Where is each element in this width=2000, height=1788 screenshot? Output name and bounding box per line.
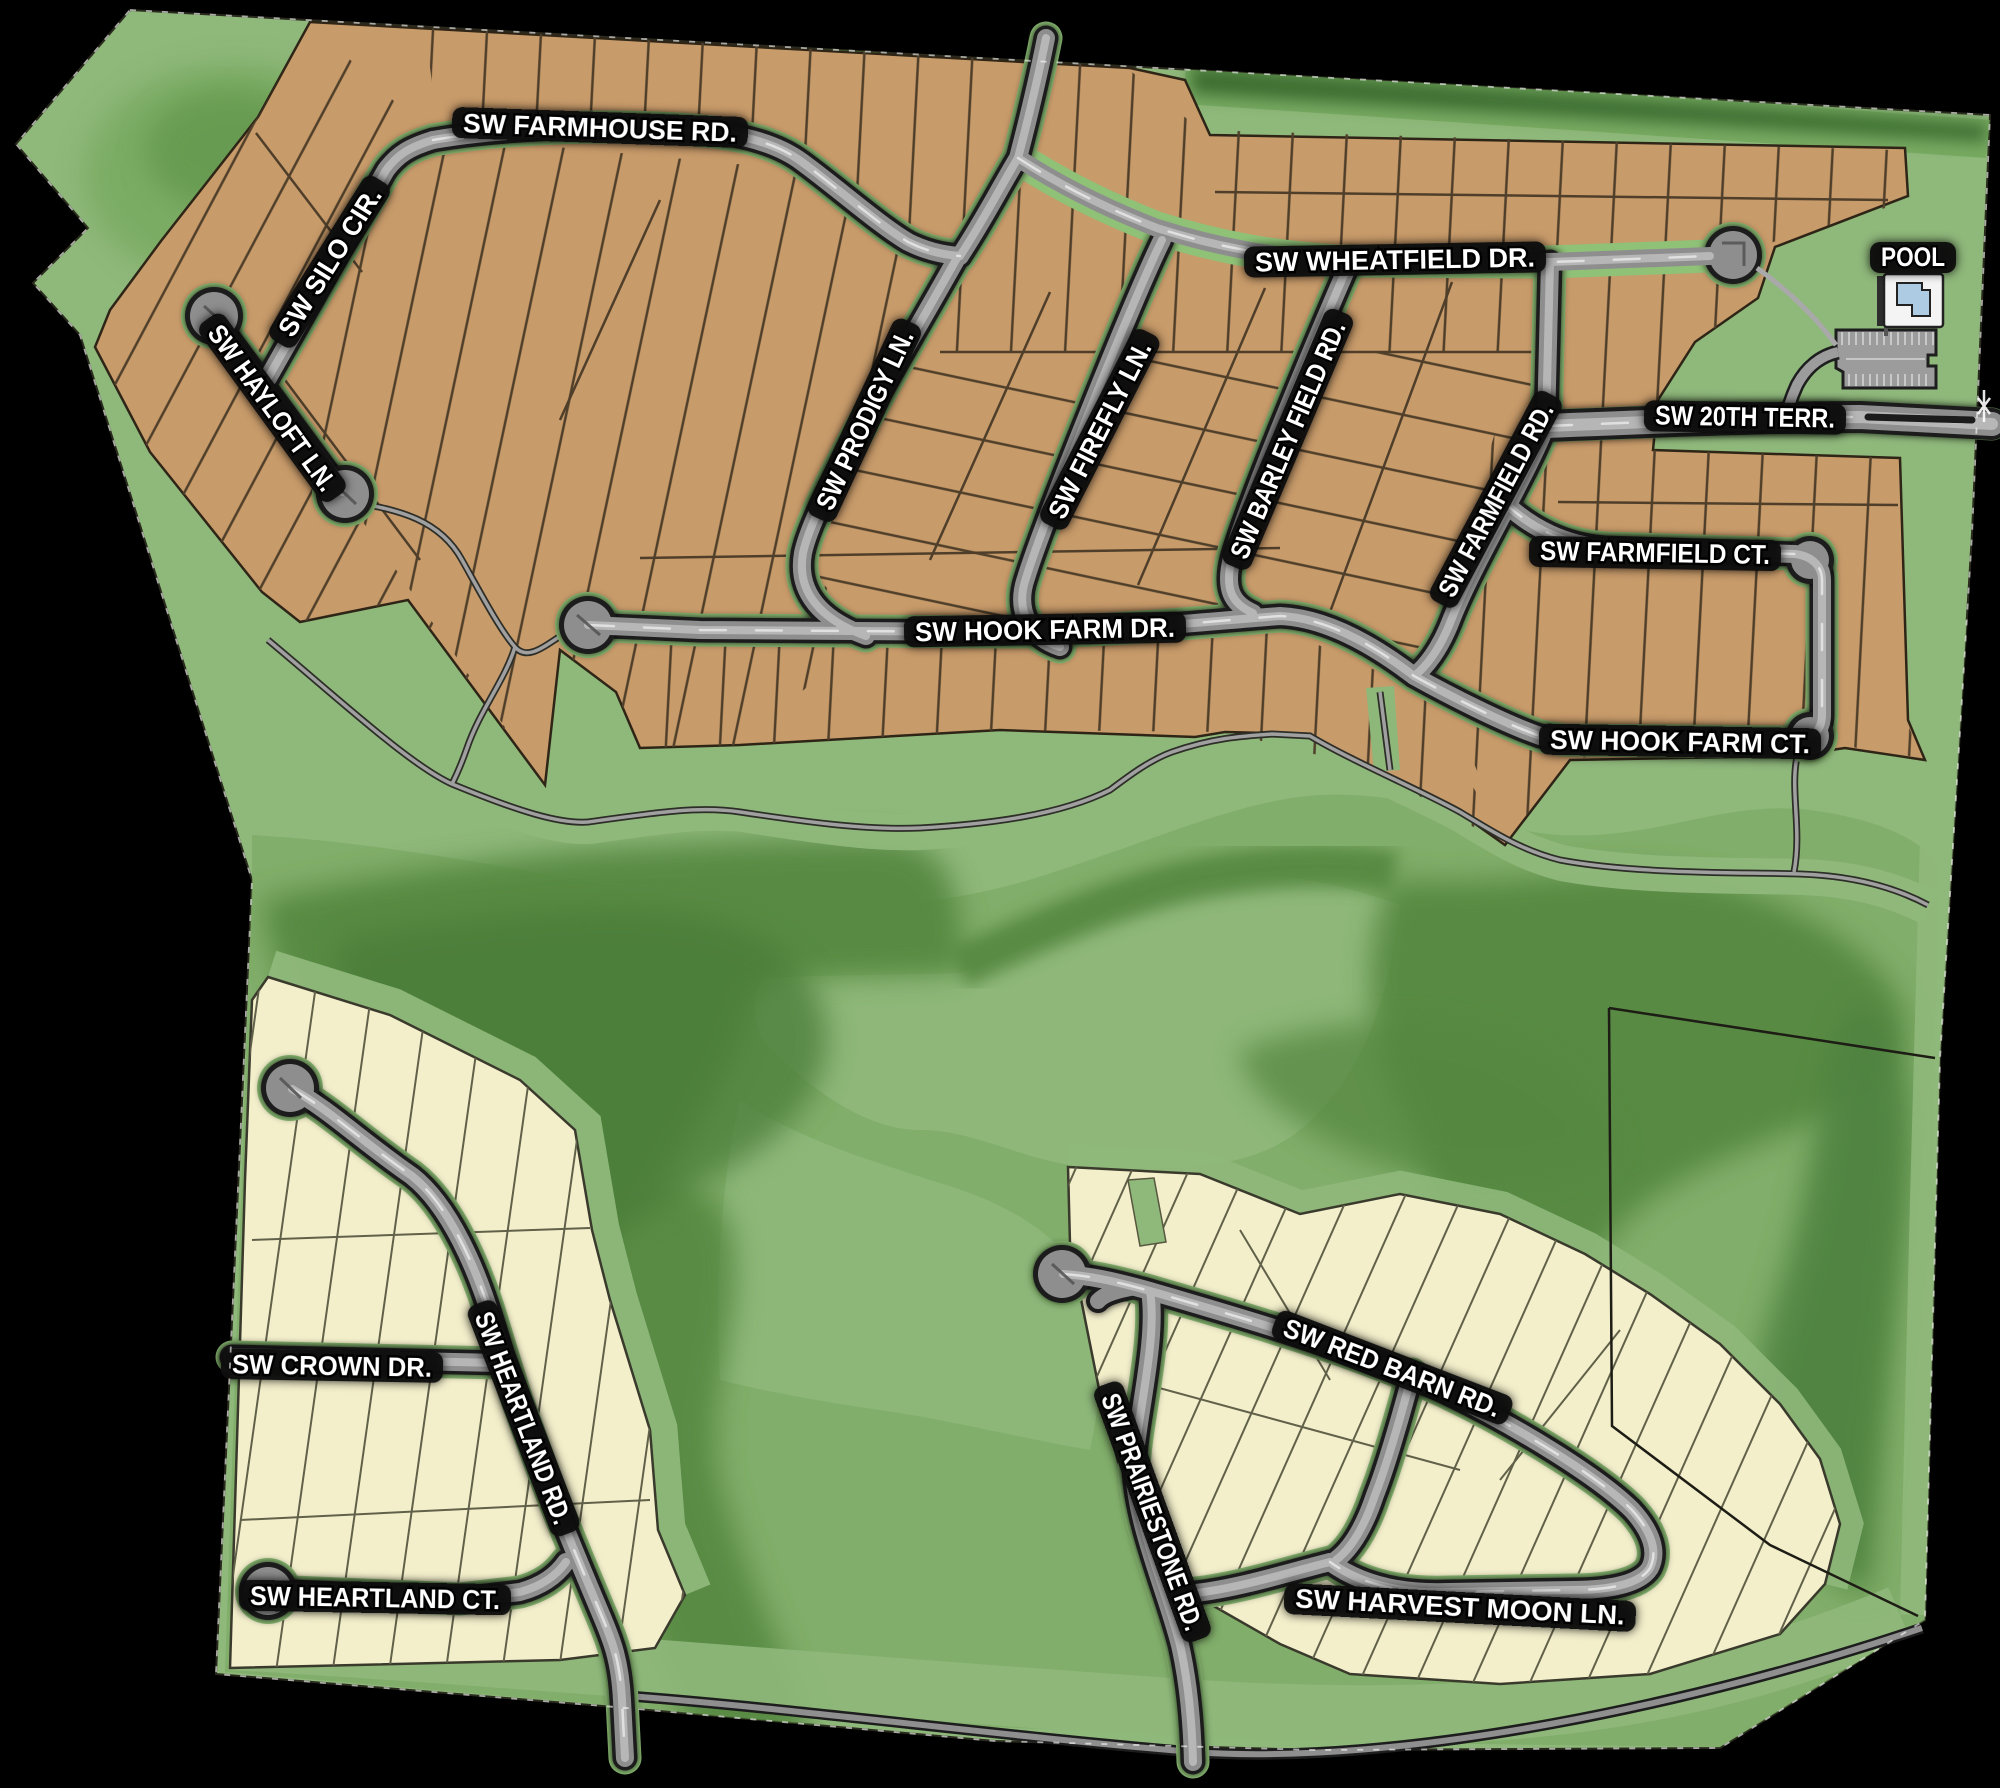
svg-text:SW WHEATFIELD DR.: SW WHEATFIELD DR. — [1255, 243, 1535, 278]
svg-text:POOL: POOL — [1881, 242, 1945, 272]
svg-text:SW HOOK FARM DR.: SW HOOK FARM DR. — [915, 613, 1175, 648]
svg-text:SW FARMFIELD CT.: SW FARMFIELD CT. — [1540, 536, 1770, 570]
svg-text:SW HEARTLAND CT.: SW HEARTLAND CT. — [250, 1581, 500, 1615]
svg-text:SW HOOK FARM CT.: SW HOOK FARM CT. — [1550, 725, 1810, 760]
svg-text:SW 20TH TERR.: SW 20TH TERR. — [1655, 400, 1835, 433]
svg-text:SW CROWN DR.: SW CROWN DR. — [232, 1349, 432, 1382]
